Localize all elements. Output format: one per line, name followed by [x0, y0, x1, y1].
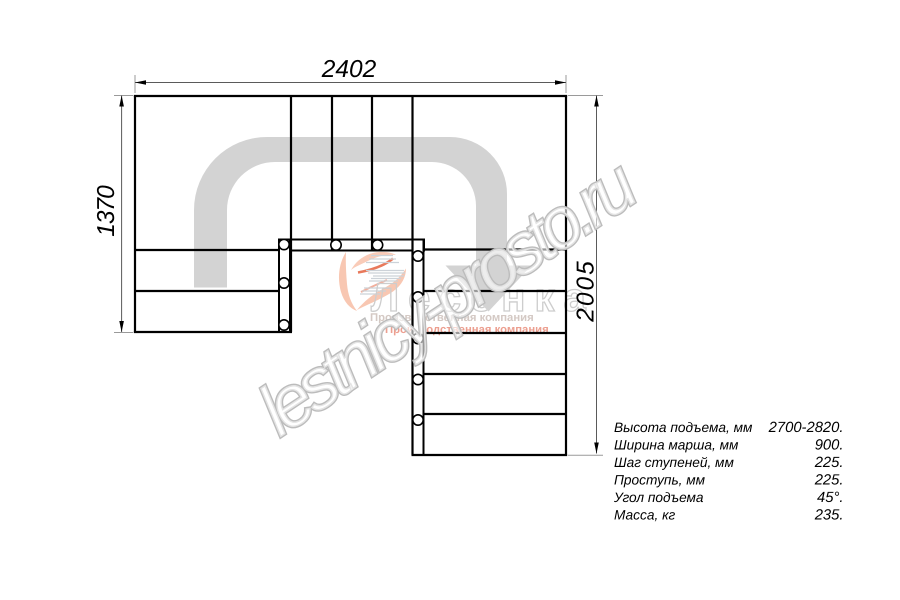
svg-text:Масса, кг: Масса, кг	[614, 508, 676, 523]
svg-text:1370: 1370	[93, 185, 120, 237]
svg-text:225.: 225.	[814, 473, 844, 489]
svg-text:225.: 225.	[814, 455, 844, 471]
svg-text:900.: 900.	[815, 438, 844, 454]
svg-text:Высота подъема, мм: Высота подъема, мм	[614, 420, 753, 435]
svg-text:235.: 235.	[814, 508, 844, 524]
svg-text:2005: 2005	[573, 259, 600, 323]
svg-text:Угол подъема: Угол подъема	[613, 490, 704, 505]
svg-text:2700-2820.: 2700-2820.	[768, 420, 844, 436]
svg-text:45°.: 45°.	[817, 490, 844, 506]
svg-text:Шаг ступеней, мм: Шаг ступеней, мм	[614, 455, 734, 470]
svg-text:Ширина марша, мм: Ширина марша, мм	[614, 438, 739, 453]
svg-text:2402: 2402	[321, 56, 377, 83]
svg-text:Проступь, мм: Проступь, мм	[614, 473, 706, 488]
